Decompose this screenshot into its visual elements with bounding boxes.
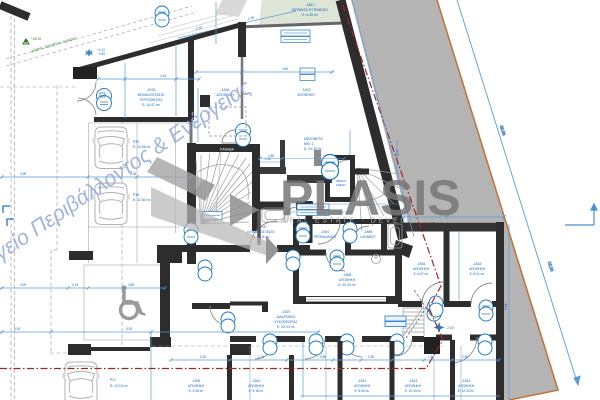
svg-text:ΑΠΟΘΗΚΗ: ΑΠΟΘΗΚΗ (469, 267, 486, 271)
svg-text:4.16: 4.16 (160, 74, 166, 78)
svg-text:Ε: 10.33 m²: Ε: 10.33 m² (405, 389, 421, 393)
svg-text:-1Β01: -1Β01 (321, 230, 330, 234)
svg-text:ΠΥΡΟΣΒΕΣΗΣ: ΠΥΡΟΣΒΕΣΗΣ (140, 98, 163, 102)
svg-text:2.50: 2.50 (462, 355, 468, 359)
svg-text:-2.80: -2.80 (446, 326, 454, 330)
svg-text:-1Β16: -1Β16 (417, 262, 426, 266)
svg-text:LAUNDRY: LAUNDRY (360, 235, 376, 239)
svg-text:-1Β08: -1Β08 (343, 273, 352, 277)
svg-text:-1Β13: -1Β13 (409, 379, 418, 383)
svg-text:ΔΙΑΔΡΟΜΟΣ: ΔΙΑΔΡΟΜΟΣ (277, 315, 296, 319)
svg-text:3.80: 3.80 (128, 283, 134, 287)
svg-text:−0.65: −0.65 (97, 52, 105, 56)
svg-text:0.88: 0.88 (320, 355, 326, 359)
svg-text:-1B17: -1B17 (305, 3, 314, 7)
svg-text:Ε: 6.48 m²: Ε: 6.48 m² (302, 13, 319, 17)
svg-text:Ε: 12.84 m²: Ε: 12.84 m² (133, 198, 151, 202)
svg-text:Ε: 8.01 m²: Ε: 8.01 m² (470, 272, 485, 276)
svg-text:ΑΠΟΘΗΚΗ: ΑΠΟΘΗΚΗ (248, 384, 265, 388)
svg-text:ΑΠΟΘΗΚΗ: ΑΠΟΘΗΚΗ (413, 267, 430, 271)
svg-text:ΑΠΟΘΗΚΗ: ΑΠΟΘΗΚΗ (339, 278, 356, 282)
svg-text:-1Ε02: -1Ε02 (146, 88, 155, 92)
svg-text:2.77: 2.77 (395, 150, 399, 156)
svg-text:5.00: 5.00 (126, 327, 132, 331)
svg-text:2.30: 2.30 (368, 355, 374, 359)
svg-text:ΑΠΟΘΗΚΗ: ΑΠΟΘΗΚΗ (188, 384, 205, 388)
svg-text:Ε: ΧΧ,ΧΧ m²: Ε: ΧΧ,ΧΧ m² (338, 283, 356, 287)
svg-text:ΚΥΚΛΟΦΟΡΙΑΣ: ΚΥΚΛΟΦΟΡΙΑΣ (274, 320, 297, 324)
svg-text:ΒΕΡΑΝΤΑ ΦΥΤΕΜΕΝΟ: ΒΕΡΑΝΤΑ ΦΥΤΕΜΕΝΟ (292, 8, 328, 12)
svg-text:-1Β05: -1Β05 (364, 230, 373, 234)
svg-text:-1Β09: -1Β09 (192, 379, 201, 383)
svg-text:Ε: 6.67 m²: Ε: 6.67 m² (414, 272, 429, 276)
svg-text:-1Α02: -1Α02 (301, 88, 310, 92)
svg-text:2.20: 2.20 (200, 355, 206, 359)
svg-text:Ε: 9.18 m²: Ε: 9.18 m² (249, 389, 264, 393)
svg-text:ΚΛΙΜΑΚΟΣΤΑΣΙΟ: ΚΛΙΜΑΚΟΣΤΑΣΙΟ (247, 230, 275, 234)
svg-text:2.18: 2.18 (258, 355, 264, 359)
svg-text:P19: P19 (133, 193, 139, 197)
svg-text:-1Β15: -1Β15 (473, 262, 482, 266)
svg-text:5.00: 5.00 (14, 327, 20, 331)
svg-text:ΜΕΖΟΝΕΤΑ: ΜΕΖΟΝΕΤΑ (304, 137, 323, 141)
svg-text:Ε: ΧΧ,50 m²: Ε: ΧΧ,50 m² (304, 147, 323, 151)
svg-text:1.50: 1.50 (428, 355, 434, 359)
svg-text:ΜΗΧΑΝΟΣΤΑΣΙΟ: ΜΗΧΑΝΟΣΤΑΣΙΟ (138, 93, 165, 97)
svg-text:4.60: 4.60 (282, 67, 288, 71)
svg-text:REAL ESTATE · DEVELOPMENT: REAL ESTATE · DEVELOPMENT (282, 218, 452, 225)
svg-text:Ε: 14.47 m²: Ε: 14.47 m² (142, 103, 160, 107)
svg-text:4.99: 4.99 (20, 283, 26, 287)
svg-text:ΑΠΟΘΗΚΗ: ΑΠΟΘΗΚΗ (354, 384, 371, 388)
svg-text:4.99: 4.99 (20, 172, 26, 176)
svg-text:1.80: 1.80 (268, 154, 274, 158)
svg-text:ΑΠΟΘΗΚΗ: ΑΠΟΘΗΚΗ (405, 384, 422, 388)
svg-text:ΚΑΝΑΒΑ: ΚΑΝΑΒΑ (220, 148, 234, 152)
svg-text:ΑΠΟΘΗΚΗ: ΑΠΟΘΗΚΗ (297, 93, 315, 97)
svg-text:Ε: 8.06 m²: Ε: 8.06 m² (355, 389, 370, 393)
svg-text:Ε: 12.33 m²: Ε: 12.33 m² (458, 389, 474, 393)
svg-text:-1Β07: -1Β07 (282, 310, 291, 314)
svg-text:Ε: ΧΧ,ΧΧ m²: Ε: ΧΧ,ΧΧ m² (277, 325, 295, 329)
svg-text:-1Β14: -1Β14 (462, 379, 471, 383)
svg-text:+28.35: +28.35 (31, 37, 41, 41)
svg-text:ΑΠΟΘΗΚΗ: ΑΠΟΘΗΚΗ (458, 384, 475, 388)
svg-text:-1Β10: -1Β10 (252, 379, 261, 383)
svg-text:P17: P17 (110, 378, 116, 382)
svg-text:0.15: 0.15 (72, 283, 78, 287)
svg-text:-1Β12: -1Β12 (358, 379, 367, 383)
svg-text:P20: P20 (133, 140, 139, 144)
svg-text:ΜΘ: 1: ΜΘ: 1 (304, 142, 313, 146)
svg-text:Ε: 9.45 m²: Ε: 9.45 m² (189, 389, 204, 393)
svg-text:ΠΡΟΘΑΛΑΜΟΣ: ΠΡΟΘΑΛΑΜΟΣ (314, 235, 337, 239)
svg-text:9.85: 9.85 (504, 303, 508, 310)
svg-text:Ε: 12.15 m²: Ε: 12.15 m² (110, 384, 128, 388)
